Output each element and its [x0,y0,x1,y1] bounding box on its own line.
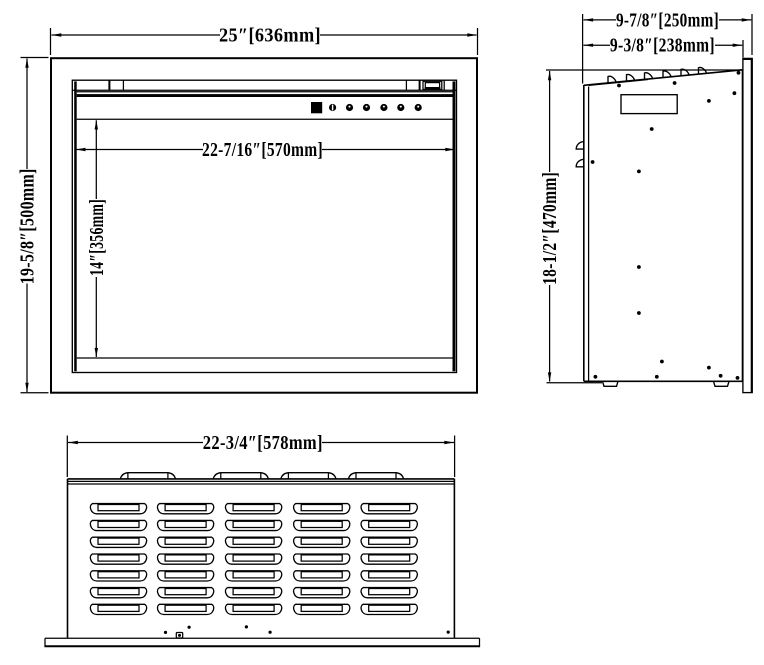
svg-text:22-3/4″[578mm]: 22-3/4″[578mm] [203,432,323,454]
svg-text:19-5/8″[500mm]: 19-5/8″[500mm] [17,168,39,284]
svg-text:14″[356mm]: 14″[356mm] [86,199,108,276]
svg-text:18-1/2″[470mm]: 18-1/2″[470mm] [539,172,561,285]
svg-text:9-7/8″[250mm]: 9-7/8″[250mm] [616,9,719,31]
svg-text:22-7/16″[570mm]: 22-7/16″[570mm] [202,139,323,161]
svg-text:9-3/8″[238mm]: 9-3/8″[238mm] [610,35,715,57]
svg-text:25″[636mm]: 25″[636mm] [219,25,321,47]
